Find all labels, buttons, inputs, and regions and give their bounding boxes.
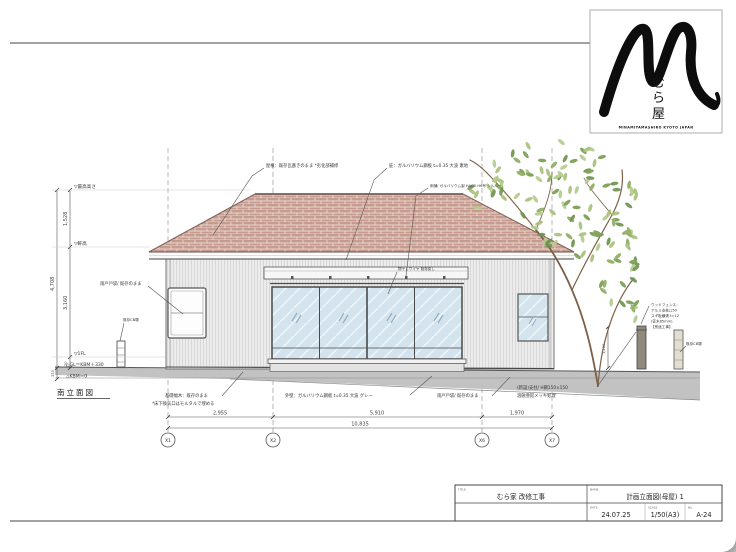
titleblock-date-label: DATE xyxy=(590,506,598,510)
door-sill xyxy=(268,359,466,364)
leaf xyxy=(610,181,619,186)
steel-post xyxy=(637,326,646,369)
leaf xyxy=(611,211,620,217)
leaf xyxy=(532,194,540,203)
leaf xyxy=(562,154,569,163)
dim-seg-1: 2,955 xyxy=(213,411,227,417)
leaf xyxy=(587,203,593,212)
drawing-title-text: 南立面図 xyxy=(57,387,95,397)
annotation-amado-left: 雨戸戸袋/ 既存のまま xyxy=(100,280,142,287)
titleblock-title-label: TITLE xyxy=(457,488,466,492)
leaf xyxy=(632,315,638,324)
leaf xyxy=(524,141,531,150)
leaf xyxy=(539,166,545,175)
level-fl: ▽1FL xyxy=(74,351,86,357)
window-right xyxy=(518,294,548,341)
porch-base xyxy=(270,364,464,372)
leaf xyxy=(602,182,611,188)
leaf xyxy=(615,222,624,227)
porch-eave xyxy=(264,267,468,279)
cb-wall-right xyxy=(674,330,683,369)
leaf xyxy=(565,232,574,240)
sliding-doors xyxy=(268,284,466,372)
annotation-cb-right: 既存CB塀 xyxy=(686,341,702,346)
level-kbm: △KBM＝0 xyxy=(66,374,87,380)
logo-kanji-3: 屋 xyxy=(652,107,665,122)
annotation-monohoshi: 物干しワイヤ 既存戻し xyxy=(398,266,435,271)
leaf xyxy=(522,150,530,159)
leaf xyxy=(574,185,580,194)
leaf xyxy=(578,221,583,230)
annotation-base-1: 基礎幅木：既存のまま xyxy=(165,392,208,399)
annotation-hisashi: 庇：ガルバリウム鋼板 t=0.35 大波 素地 xyxy=(389,162,469,169)
title-block: TITLE むら家 改修工事 NAME 計画立面図(母屋) 1 DATE 24.… xyxy=(455,485,722,521)
leaf xyxy=(538,158,547,162)
leaf xyxy=(548,208,557,216)
leaf xyxy=(582,213,591,221)
annotation-wall: 外壁：ガルバリウム鋼板 t=0.35 大波 グレー xyxy=(285,392,373,399)
leaf xyxy=(510,149,515,158)
annotation-gutter: 雨樋/ ガルバリウム製 HACO H6号 シルバー xyxy=(430,183,502,188)
leaf xyxy=(512,156,521,164)
logo-box: む ら 屋 MINAMIYAMASHIRO KYOTO JAPAN xyxy=(590,10,722,133)
annotation-post-2: 溶融亜鉛メッキ処理 xyxy=(517,392,556,399)
cb-wall-left xyxy=(117,341,125,367)
annotation-fence-5: 【別途工事】 xyxy=(651,324,673,329)
elevation-canvas: む ら 屋 MINAMIYAMASHIRO KYOTO JAPAN xyxy=(0,0,736,552)
annotation-roof: 屋根：既存瓦葺きのまま *劣化部補修 xyxy=(266,162,339,169)
dim-seg-2: 5,910 xyxy=(370,411,384,417)
leaf xyxy=(572,206,580,210)
titleblock-date: 24.07.25 xyxy=(601,511,630,519)
dim-overall-width: 10,835 xyxy=(351,422,369,428)
leaf xyxy=(570,239,575,248)
leaf xyxy=(592,159,597,168)
building-elevation xyxy=(149,194,574,372)
grid-label-x7: X7 xyxy=(549,438,555,444)
bottom-dimensions: 2,955 5,910 1,970 10,835 X1 X2 X6 X7 xyxy=(161,411,559,448)
leaf xyxy=(624,202,633,210)
leaf xyxy=(535,175,544,183)
annotation-post-1: (新設)支柱/ H鋼150×150 xyxy=(517,384,568,391)
leaf xyxy=(597,154,606,160)
tiled-roof xyxy=(149,194,574,252)
logo-kanji-2: ら xyxy=(652,91,665,106)
titleblock-no-label: No. xyxy=(688,506,693,510)
annotation-fence-1: ウッドフェンス： xyxy=(651,302,680,307)
leaf xyxy=(578,154,587,162)
annotation-fence-4: (笠木85mm) xyxy=(651,319,673,324)
drawing-sheet: む ら 屋 MINAMIYAMASHIRO KYOTO JAPAN xyxy=(0,0,736,552)
logo-kanji-1: む xyxy=(652,76,665,91)
leaf xyxy=(559,163,568,170)
logo-caption: MINAMIYAMASHIRO KYOTO JAPAN xyxy=(619,126,694,130)
leaf xyxy=(534,220,543,226)
dim-overall-height: 4,708 xyxy=(50,277,56,291)
leaf xyxy=(568,185,573,194)
annotation-cb-left: 既存CB塀 xyxy=(123,317,139,322)
leaf xyxy=(492,159,496,168)
leaf xyxy=(557,138,566,146)
leaf xyxy=(519,211,527,220)
titleblock-scale: 1/50(A3) xyxy=(651,511,680,519)
leaf xyxy=(558,190,562,199)
dim-ground: 330 xyxy=(51,369,55,377)
grid-label-x1: X1 xyxy=(165,438,171,444)
leaf xyxy=(563,172,568,181)
grid-bubbles: X1 X2 X6 X7 xyxy=(161,433,559,447)
leaf xyxy=(625,300,634,306)
titleblock-name: 計画立面図(母屋) 1 xyxy=(626,492,684,501)
leaf xyxy=(619,280,627,289)
leaf xyxy=(550,161,558,169)
grid-label-x2: X2 xyxy=(270,438,276,444)
shutter-box-left xyxy=(168,288,206,338)
leaf xyxy=(569,158,578,164)
dim-middle: 3,160 xyxy=(63,296,69,310)
leaf xyxy=(609,298,613,306)
drawing-title: 南立面図 xyxy=(57,387,110,399)
titleblock-scale-label: SCALE xyxy=(648,506,657,510)
leaf xyxy=(612,188,621,192)
leaf xyxy=(513,192,521,200)
ground xyxy=(55,367,700,400)
grid-label-x6: X6 xyxy=(479,438,485,444)
titleblock-name-label: NAME xyxy=(590,488,599,492)
dim-upper: 1,528 xyxy=(63,212,69,226)
level-top: ▽最高高さ xyxy=(74,183,96,190)
annotation-fence-3: スギ板横張 t=12 xyxy=(651,313,679,318)
leaf xyxy=(524,196,533,202)
titleblock-title: むら家 改修工事 xyxy=(497,492,546,501)
dim-seg-3: 1,970 xyxy=(510,411,524,417)
titleblock-no: A-24 xyxy=(696,511,711,519)
annotation-base-2: *床下換気口はモルタルで埋める xyxy=(152,400,214,407)
leaf xyxy=(554,233,563,237)
annotation-fence-2: アルミ支柱□50 xyxy=(651,308,678,313)
level-eave: ▽軒高 xyxy=(74,240,87,247)
annotation-amado-bottom: 雨戸戸袋/ 既存のまま xyxy=(437,392,479,399)
level-gl: △GL＝KBM＋330 xyxy=(66,362,104,368)
